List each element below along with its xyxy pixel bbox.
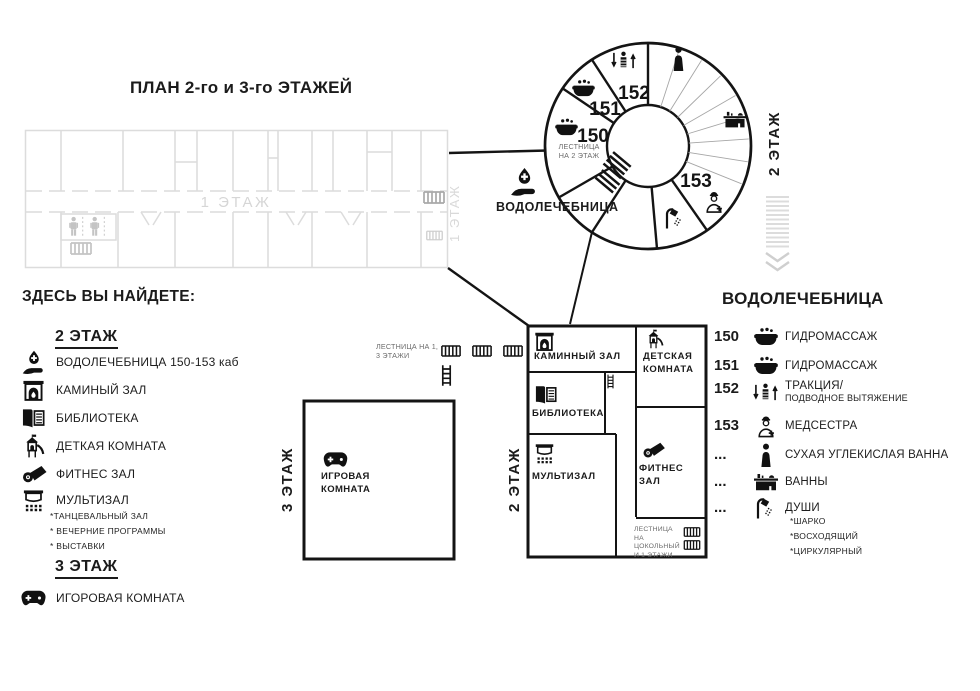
room-number-152: 152 bbox=[618, 83, 650, 104]
shower-note: *ШАРКО bbox=[790, 516, 826, 526]
hydro-legend-item-150: 150 ГИДРОМАССАЖ bbox=[714, 324, 878, 349]
item-bullets: ... bbox=[714, 446, 746, 463]
legend-item-multihall: МУЛЬТИЗАЛ bbox=[20, 487, 129, 513]
hydro-legend-item-151: 151 ГИДРОМАССАЖ bbox=[714, 353, 878, 378]
fitness-icon bbox=[20, 461, 47, 487]
circle-floor-label: 2 ЭТАЖ bbox=[766, 112, 783, 176]
hydro-legend-sublabel: ПОДВОДНОЕ ВЫТЯЖЕНИЕ bbox=[785, 393, 908, 403]
legend-floor2-title: 2 ЭТАЖ bbox=[55, 328, 118, 349]
hydro-legend-label: ТРАКЦИЯ/ bbox=[785, 380, 908, 392]
legend-item-label: КАМИНЫЙ ЗАЛ bbox=[56, 383, 146, 397]
floor3-side-label: 3 ЭТАЖ bbox=[279, 450, 296, 512]
library-icon bbox=[20, 405, 47, 431]
item-bullets: ... bbox=[714, 499, 746, 516]
multihall-icon bbox=[20, 487, 47, 513]
hydro-legend-label: ВАННЫ bbox=[785, 476, 828, 488]
hydro-legend-item-dry-bath: ... СУХАЯ УГЛЕКИСЛАЯ ВАННА bbox=[714, 442, 948, 467]
fireplace-hall-label: КАМИННЫЙ ЗАЛ bbox=[534, 351, 634, 364]
legend-floor3-title: 3 ЭТАЖ bbox=[55, 558, 118, 579]
room-number: 153 bbox=[714, 417, 746, 434]
hydro-legend-label: ГИДРОМАССАЖ bbox=[785, 331, 878, 343]
hydrotherapy-entrance-label: ВОДОЛЕЧЕБНИЦА bbox=[496, 200, 614, 214]
legend-item-label: ДЕТКАЯ КОМНАТА bbox=[56, 439, 166, 453]
legend-item-fireplace-hall: КАМИНЫЙ ЗАЛ bbox=[20, 377, 146, 403]
hydro-legend-label: ДУШИ bbox=[785, 502, 820, 514]
hydromassage-tub-icon bbox=[752, 353, 779, 378]
legend-item-label: ФИТНЕС ЗАЛ bbox=[56, 467, 135, 481]
legend-item-kids-room: ДЕТКАЯ КОМНАТА bbox=[20, 433, 166, 459]
item-bullets: ... bbox=[714, 473, 746, 490]
legend-item-label: БИБЛИОТЕКА bbox=[56, 411, 139, 425]
hydro-legend-label: ГИДРОМАССАЖ bbox=[785, 360, 878, 372]
legend-item-hydrotherapy: ВОДОЛЕЧЕБНИЦА 150-153 каб bbox=[20, 349, 239, 375]
legend-heading: ЗДЕСЬ ВЫ НАЙДЕТЕ: bbox=[22, 288, 195, 306]
legend-item-game-room: ИГОРОВАЯ КОМНАТА bbox=[20, 585, 185, 611]
dry-bath-icon bbox=[752, 442, 779, 467]
floor-plan-page: 1 ЭТАЖ bbox=[0, 0, 980, 691]
floor1-corridor-label: 1 ЭТАЖ bbox=[201, 194, 272, 211]
stairs-icon bbox=[71, 243, 91, 254]
fitness-hall-label: ФИТНЕС ЗАЛ bbox=[639, 463, 691, 488]
kids-room-icon bbox=[20, 433, 47, 459]
legend-item-library: БИБЛИОТЕКА bbox=[20, 405, 139, 431]
game-room-label: ИГРОВАЯ КОМНАТА bbox=[321, 471, 385, 496]
wc-icon bbox=[69, 217, 104, 236]
hydro-legend-item-153: 153 МЕДСЕСТРА bbox=[714, 413, 857, 438]
room-number: 151 bbox=[714, 357, 746, 374]
legend-item-fitness-hall: ФИТНЕС ЗАЛ bbox=[20, 461, 135, 487]
down-arrow bbox=[766, 197, 789, 270]
hydro-legend-heading: ВОДОЛЕЧЕБНИЦА bbox=[722, 289, 884, 309]
room-number-153: 153 bbox=[680, 171, 712, 192]
hydrotherapy-icon bbox=[20, 349, 47, 375]
hydro-legend-label: МЕДСЕСТРА bbox=[785, 420, 857, 432]
floor2-side-label: 2 ЭТАЖ bbox=[506, 450, 523, 512]
stairs-icon bbox=[424, 192, 444, 203]
kids-room-label: ДЕТСКАЯ КОМНАТА bbox=[643, 351, 701, 376]
hydro-legend-item-baths: ... ВАННЫ bbox=[714, 469, 828, 494]
hydro-legend-item-152: 152 ТРАКЦИЯ/ ПОДВОДНОЕ ВЫТЯЖЕНИЕ bbox=[714, 380, 908, 405]
multihall-note: * ВЕЧЕРНИЕ ПРОГРАММЫ bbox=[50, 526, 166, 536]
hydromassage-tub-icon bbox=[752, 324, 779, 349]
nurse-icon bbox=[752, 413, 779, 438]
mid-stairs-icons bbox=[442, 346, 522, 386]
multihall-label: МУЛЬТИЗАЛ bbox=[532, 471, 612, 484]
stairs-to-floor2-label: ЛЕСТНИЦА НА 2 ЭТАЖ bbox=[553, 142, 605, 160]
multihall-note: * ВЫСТАВКИ bbox=[50, 541, 105, 551]
hydrotherapy-icon bbox=[511, 168, 535, 196]
page-title: ПЛАН 2-го и 3-го ЭТАЖЕЙ bbox=[130, 78, 352, 98]
room-number: 150 bbox=[714, 328, 746, 345]
bath-icon bbox=[752, 469, 779, 494]
multihall-note: *ТАНЦЕВАЛЬНЫЙ ЗАЛ bbox=[50, 511, 148, 521]
room-number-151: 151 bbox=[589, 99, 621, 120]
shower-icon bbox=[752, 495, 779, 520]
library-label: БИБЛИОТЕКА bbox=[532, 408, 612, 421]
legend-item-label: МУЛЬТИЗАЛ bbox=[56, 493, 129, 507]
shower-note: *ВОСХОДЯЩИЙ bbox=[790, 531, 858, 541]
shower-note: *ЦИРКУЛЯРНЫЙ bbox=[790, 546, 862, 556]
hydro-legend-label: СУХАЯ УГЛЕКИСЛАЯ ВАННА bbox=[785, 449, 948, 461]
stairs-icon bbox=[427, 231, 442, 240]
room-number: 152 bbox=[714, 380, 746, 397]
stairs-to-floors-1-3-label: ЛЕСТНИЦА НА 1, 3 ЭТАЖИ bbox=[376, 342, 440, 360]
traction-icon bbox=[752, 380, 779, 405]
legend-item-label: ИГОРОВАЯ КОМНАТА bbox=[56, 591, 185, 605]
floor1-side-label: 1 ЭТАЖ bbox=[447, 182, 462, 242]
legend-item-label: ВОДОЛЕЧЕБНИЦА 150-153 каб bbox=[56, 355, 239, 369]
fireplace-icon bbox=[20, 377, 47, 403]
stairs-to-basement-label: ЛЕСТНИЦА НА ЦОКОЛЬНЫЙ И 1 ЭТАЖИ bbox=[634, 526, 684, 560]
gamepad-icon bbox=[20, 585, 47, 611]
